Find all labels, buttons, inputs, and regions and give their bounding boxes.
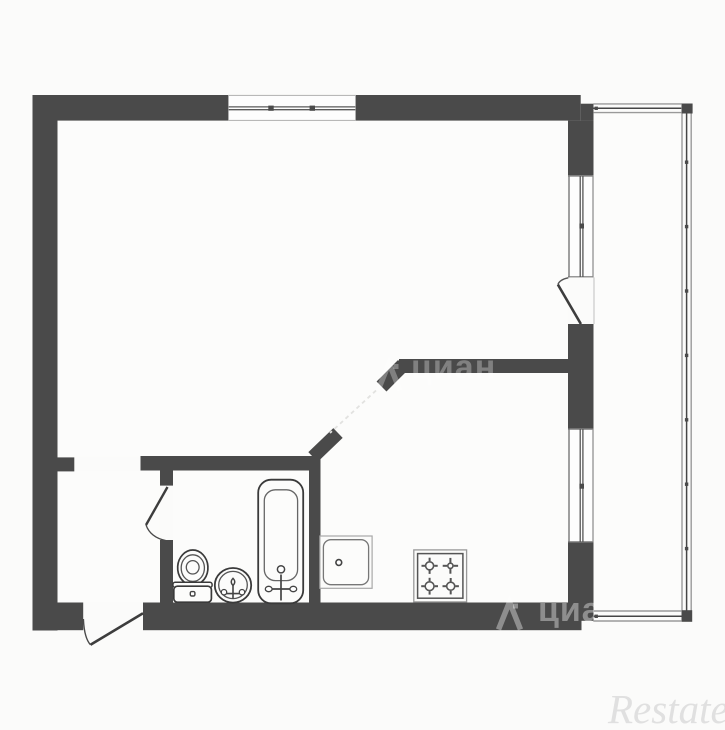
svg-text:Restate: Restate [607,686,725,725]
svg-text:циан: циан [411,349,496,387]
